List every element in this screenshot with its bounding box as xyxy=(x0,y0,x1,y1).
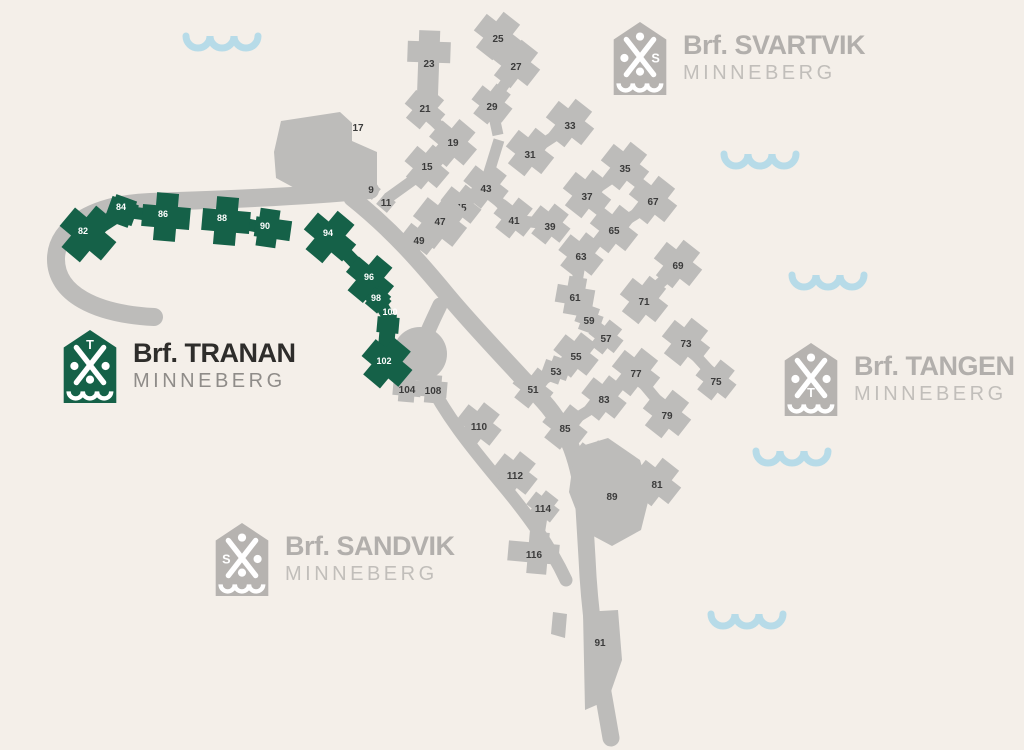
minneberg-site-map: 9111517192123252729313335373941434547495… xyxy=(0,0,1024,750)
building-label-86: 86 xyxy=(158,209,168,219)
building-label-27: 27 xyxy=(510,62,522,73)
building-label-81: 81 xyxy=(651,480,663,491)
wave-icon xyxy=(724,154,796,166)
tangen-place: MINNEBERG xyxy=(854,383,1015,406)
building-label-88: 88 xyxy=(217,213,227,223)
tranan-prefix: Brf. xyxy=(133,338,178,368)
sandvik-brand: Brf.SANDVIK xyxy=(285,532,455,560)
building-label-19: 19 xyxy=(447,138,459,149)
building-label-25: 25 xyxy=(492,34,504,45)
svartvik-shield-icon: S xyxy=(612,20,668,96)
svg-text:S: S xyxy=(651,51,659,65)
tangen-shield-icon: T xyxy=(783,341,839,417)
svartvik-name: SVARTVIK xyxy=(735,30,866,60)
tranan-shield-icon: T xyxy=(62,328,118,404)
building-label-61: 61 xyxy=(569,293,581,304)
building-annex xyxy=(551,612,567,638)
building-label-65: 65 xyxy=(608,226,620,237)
wave-icon xyxy=(756,451,828,463)
building-label-51: 51 xyxy=(527,385,539,396)
wave-icon xyxy=(186,36,258,48)
building-label-49: 49 xyxy=(413,236,425,247)
building-label-43: 43 xyxy=(480,184,492,195)
brf-tranan-logo[interactable]: T Brf.TRANAN MINNEBERG xyxy=(62,328,296,404)
svg-text:T: T xyxy=(86,338,94,352)
building-label-63: 63 xyxy=(575,252,587,263)
building-label-39: 39 xyxy=(544,222,556,233)
building-label-33: 33 xyxy=(564,121,576,132)
building-label-94: 94 xyxy=(323,228,333,238)
building-91 xyxy=(583,610,622,710)
svg-text:T: T xyxy=(807,386,815,400)
brf-svartvik-logo[interactable]: S Brf.SVARTVIK MINNEBERG xyxy=(612,20,865,96)
building-label-57: 57 xyxy=(600,334,612,345)
building-label-96: 96 xyxy=(364,272,374,282)
building-label-84: 84 xyxy=(116,202,126,212)
sandvik-shield-icon: S xyxy=(214,521,270,597)
tangen-name: TANGEN xyxy=(906,351,1015,381)
tangen-logo-text: Brf.TANGEN MINNEBERG xyxy=(854,352,1015,406)
wave-icon xyxy=(792,275,864,287)
svartvik-place: MINNEBERG xyxy=(683,62,865,85)
building-label-75: 75 xyxy=(710,377,722,388)
svg-text:S: S xyxy=(222,552,230,566)
building-label-77: 77 xyxy=(630,369,642,380)
building-label-15: 15 xyxy=(421,162,433,173)
svartvik-logo-text: Brf.SVARTVIK MINNEBERG xyxy=(683,31,865,85)
building-label-11: 11 xyxy=(381,198,392,209)
building-label-59: 59 xyxy=(583,316,595,327)
tangen-brand: Brf.TANGEN xyxy=(854,352,1015,380)
building-label-73: 73 xyxy=(680,339,692,350)
building-label-71: 71 xyxy=(638,297,650,308)
tranan-logo-text: Brf.TRANAN MINNEBERG xyxy=(133,339,296,393)
building-label-29: 29 xyxy=(486,102,498,113)
building-label-83: 83 xyxy=(598,395,610,406)
building-label-116: 116 xyxy=(526,550,543,561)
building-label-79: 79 xyxy=(661,411,673,422)
building-label-55: 55 xyxy=(570,352,582,363)
sandvik-name: SANDVIK xyxy=(337,531,455,561)
building-label-100: 100 xyxy=(382,307,397,317)
sandvik-prefix: Brf. xyxy=(285,531,330,561)
svartvik-brand: Brf.SVARTVIK xyxy=(683,31,865,59)
building-label-69: 69 xyxy=(672,261,684,272)
building-label-110: 110 xyxy=(471,422,488,433)
wave-icon xyxy=(711,614,783,626)
building-label-47: 47 xyxy=(434,217,446,228)
building-label-85: 85 xyxy=(559,424,571,435)
building-label-108: 108 xyxy=(425,386,442,397)
building-label-104: 104 xyxy=(399,385,416,396)
building-label-112: 112 xyxy=(507,471,524,482)
building-label-41: 41 xyxy=(508,216,520,227)
tranan-place: MINNEBERG xyxy=(133,370,296,393)
building-label-37: 37 xyxy=(581,192,593,203)
tranan-name: TRANAN xyxy=(185,338,296,368)
building-label-17: 17 xyxy=(352,123,364,134)
sandvik-place: MINNEBERG xyxy=(285,563,455,586)
building-label-114: 114 xyxy=(535,504,552,515)
brf-tangen-logo[interactable]: T Brf.TANGEN MINNEBERG xyxy=(783,341,1015,417)
building-label-89: 89 xyxy=(606,492,618,503)
sandvik-logo-text: Brf.SANDVIK MINNEBERG xyxy=(285,532,455,586)
building-label-35: 35 xyxy=(619,164,631,175)
building-label-23: 23 xyxy=(423,59,435,70)
svartvik-prefix: Brf. xyxy=(683,30,728,60)
building-label-31: 31 xyxy=(524,150,536,161)
building-label-82: 82 xyxy=(78,226,88,236)
brf-sandvik-logo[interactable]: S Brf.SANDVIK MINNEBERG xyxy=(214,521,455,597)
building-label-9: 9 xyxy=(368,185,374,196)
tangen-prefix: Brf. xyxy=(854,351,899,381)
building-90 xyxy=(252,207,293,250)
building-label-90: 90 xyxy=(260,221,270,231)
tranan-brand: Brf.TRANAN xyxy=(133,339,296,367)
building-label-102: 102 xyxy=(376,356,391,366)
building-label-98: 98 xyxy=(371,293,381,303)
building-label-21: 21 xyxy=(419,104,431,115)
building-label-67: 67 xyxy=(647,197,659,208)
building-label-91: 91 xyxy=(594,638,606,649)
